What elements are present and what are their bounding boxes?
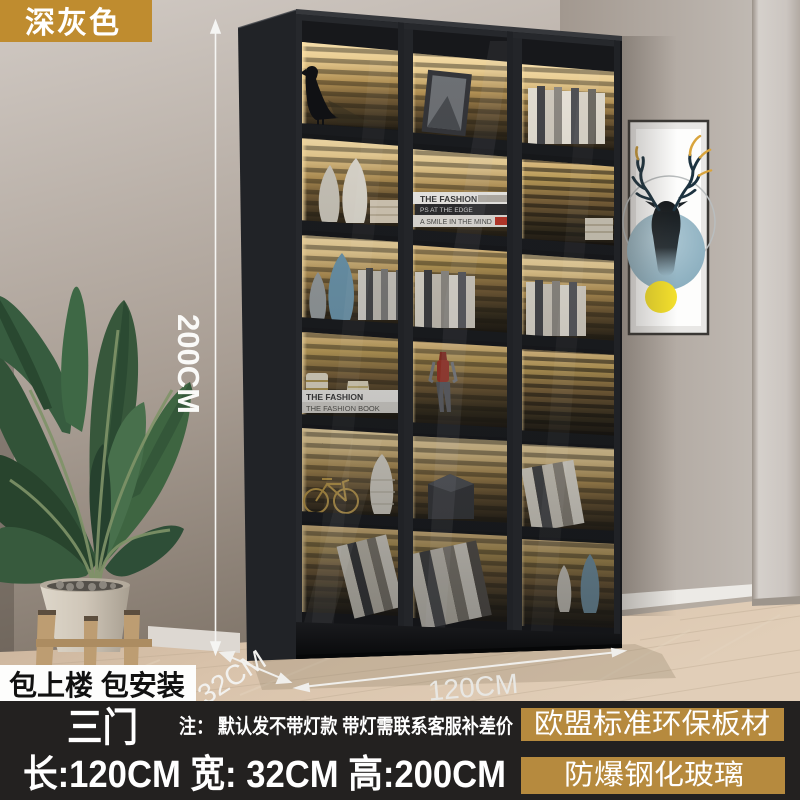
svg-text:包上楼 包安装: 包上楼 包安装 — [9, 670, 185, 701]
svg-text:深灰色: 深灰色 — [25, 7, 121, 40]
svg-text:200CM: 200CM — [171, 314, 206, 414]
svg-text:注： 默认发不带灯款 带灯需联系客服补差价: 注： 默认发不带灯款 带灯需联系客服补差价 — [179, 714, 514, 738]
svg-text:三门: 三门 — [67, 706, 138, 750]
svg-text:防爆钢化玻璃: 防爆钢化玻璃 — [564, 759, 744, 790]
svg-text:长:120CM 宽: 32CM 高:200CM: 长:120CM 宽: 32CM 高:200CM — [23, 753, 506, 796]
svg-text:欧盟标准环保板材: 欧盟标准环保板材 — [534, 708, 770, 739]
